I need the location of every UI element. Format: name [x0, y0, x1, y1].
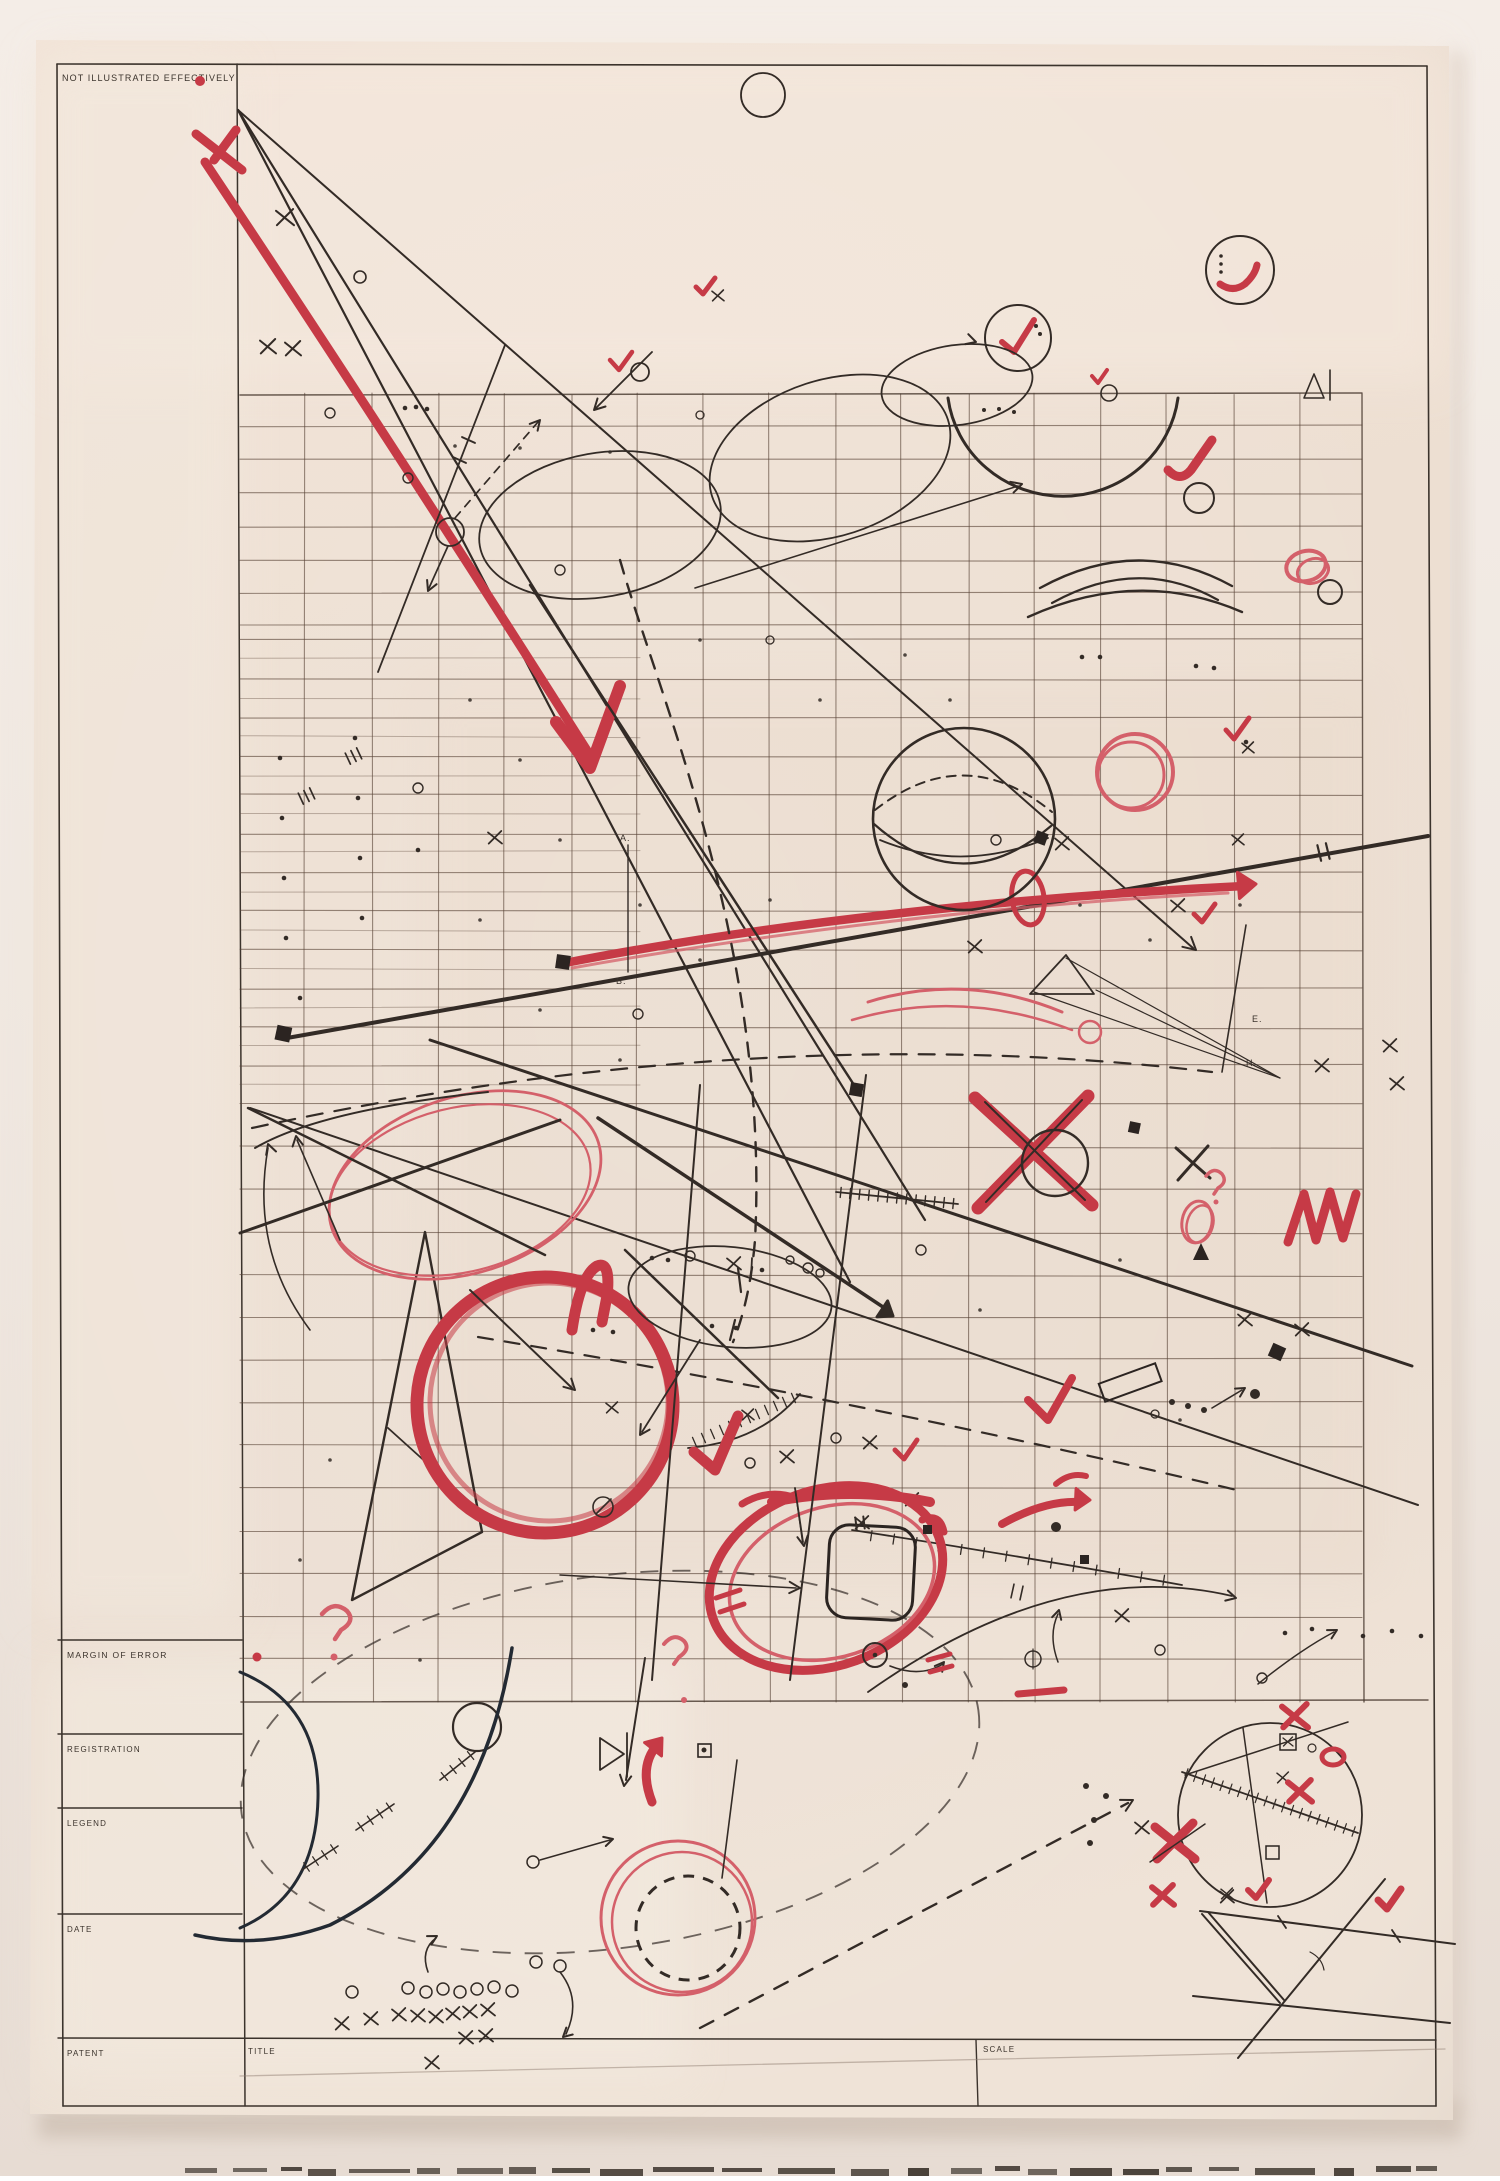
svg-text:SCALE: SCALE: [983, 2045, 1015, 2054]
svg-text:REGISTRATION: REGISTRATION: [67, 1745, 141, 1754]
svg-text:TITLE: TITLE: [248, 2047, 276, 2056]
svg-text:NOT ILLUSTRATED EFFECTIVELY: NOT ILLUSTRATED EFFECTIVELY: [62, 73, 236, 83]
svg-text:A.: A.: [620, 833, 631, 843]
svg-text:B.: B.: [616, 976, 627, 986]
svg-text:DATE: DATE: [67, 1925, 93, 1934]
svg-text:E.: E.: [1252, 1014, 1263, 1024]
svg-text:MARGIN OF ERROR: MARGIN OF ERROR: [67, 1650, 168, 1660]
svg-text:PATENT: PATENT: [67, 2049, 105, 2058]
svg-text:LEGEND: LEGEND: [67, 1819, 107, 1828]
